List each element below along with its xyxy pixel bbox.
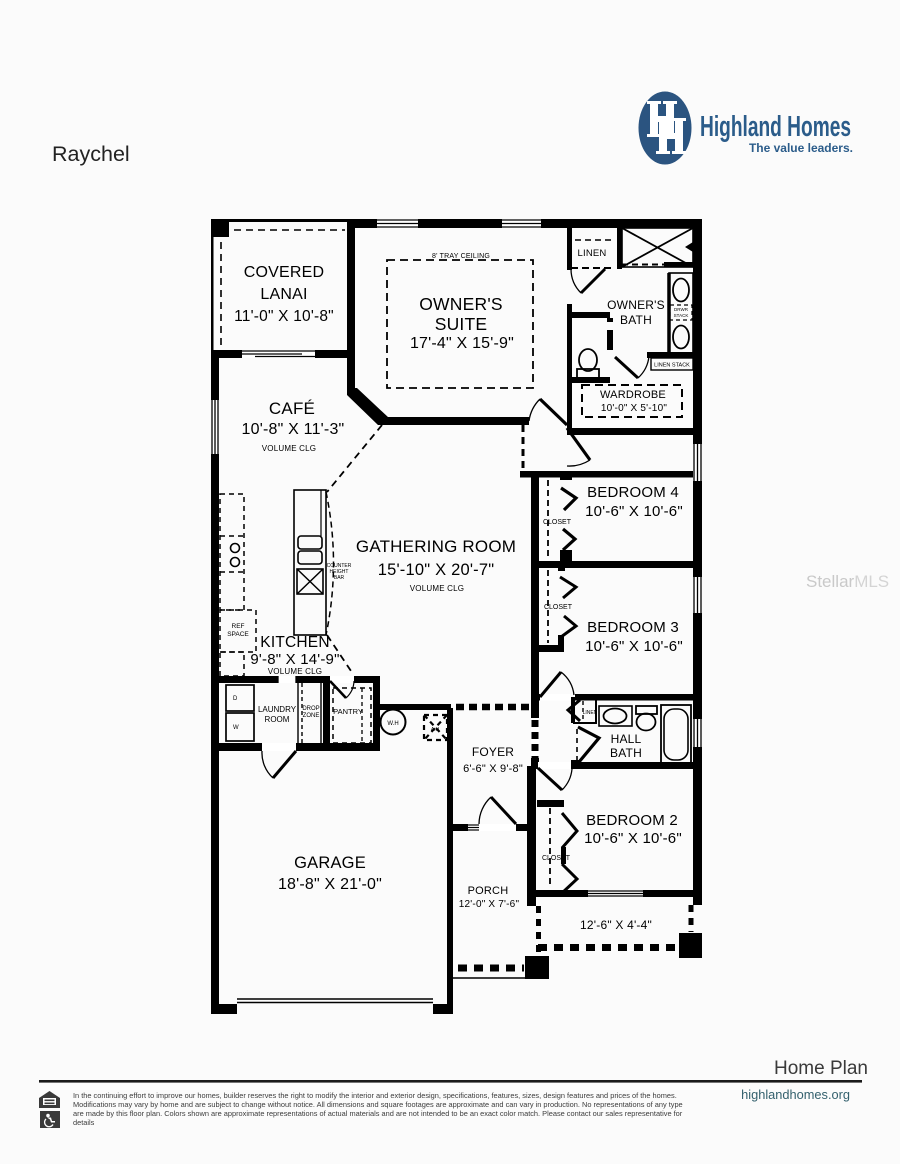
svg-text:17'-4" X 15'-9": 17'-4" X 15'-9" <box>410 335 514 352</box>
svg-text:COVERED: COVERED <box>244 264 325 281</box>
svg-text:HALL: HALL <box>611 732 642 746</box>
svg-text:DROP: DROP <box>302 706 319 712</box>
svg-text:18'-8" X 21'-0": 18'-8" X 21'-0" <box>278 876 382 893</box>
svg-text:6'-6" X 9'-8": 6'-6" X 9'-8" <box>463 763 523 775</box>
svg-text:KITCHEN: KITCHEN <box>260 634 329 651</box>
svg-text:OWNER'S: OWNER'S <box>419 294 503 314</box>
svg-text:ZONE: ZONE <box>303 713 320 719</box>
svg-text:LAUNDRY: LAUNDRY <box>258 705 297 714</box>
svg-text:The value leaders.: The value leaders. <box>749 141 853 155</box>
svg-text:D: D <box>233 696 238 702</box>
svg-text:ROOM: ROOM <box>265 715 290 724</box>
svg-text:LANAI: LANAI <box>260 286 307 303</box>
svg-text:BATH: BATH <box>610 746 642 760</box>
svg-text:SPACE: SPACE <box>227 631 249 638</box>
svg-text:10'-6" X 10'-6": 10'-6" X 10'-6" <box>585 503 683 520</box>
svg-text:OWNER'S: OWNER'S <box>607 298 665 312</box>
svg-text:REF: REF <box>232 623 245 630</box>
svg-text:Home Plan: Home Plan <box>774 1058 868 1079</box>
svg-text:LINEN: LINEN <box>583 710 598 716</box>
svg-text:VOLUME CLG: VOLUME CLG <box>410 584 464 593</box>
svg-text:In the continuing effort to im: In the continuing effort to improve our … <box>73 1091 677 1100</box>
svg-text:LINEN STACK: LINEN STACK <box>654 363 690 369</box>
svg-text:VOLUME CLG: VOLUME CLG <box>262 444 316 453</box>
svg-text:10'-8" X 11'-3": 10'-8" X 11'-3" <box>242 421 345 438</box>
svg-text:WARDROBE: WARDROBE <box>600 389 666 401</box>
svg-text:GARAGE: GARAGE <box>294 854 366 872</box>
svg-text:11'-0" X 10'-8": 11'-0" X 10'-8" <box>234 308 334 325</box>
svg-text:10'-6" X 10'-6": 10'-6" X 10'-6" <box>584 830 682 847</box>
svg-text:StellarMLS: StellarMLS <box>806 572 889 591</box>
svg-text:Highland Homes: Highland Homes <box>700 111 851 143</box>
svg-text:CAFÉ: CAFÉ <box>269 399 315 418</box>
svg-text:10'-0" X 5'-10": 10'-0" X 5'-10" <box>601 403 667 414</box>
svg-text:Modifications may vary by home: Modifications may vary by home and are s… <box>73 1100 683 1109</box>
svg-text:12'-6" X 4'-4": 12'-6" X 4'-4" <box>580 918 652 932</box>
svg-text:10'-6" X 10'-6": 10'-6" X 10'-6" <box>585 638 683 655</box>
svg-text:SUITE: SUITE <box>435 314 488 334</box>
svg-text:PANTRY: PANTRY <box>333 707 363 716</box>
svg-text:details: details <box>73 1118 95 1127</box>
svg-text:CLOSET: CLOSET <box>542 855 571 862</box>
svg-text:BAR: BAR <box>334 575 345 581</box>
svg-text:VOLUME CLG: VOLUME CLG <box>268 667 322 676</box>
svg-text:9'-8" X 14'-9": 9'-8" X 14'-9" <box>250 651 339 668</box>
svg-text:BATH: BATH <box>620 313 652 327</box>
svg-text:Raychel: Raychel <box>52 142 130 166</box>
svg-text:CLOSET: CLOSET <box>543 519 572 526</box>
svg-text:BEDROOM 3: BEDROOM 3 <box>587 619 679 636</box>
svg-text:A.H: A.H <box>431 727 440 733</box>
svg-text:PORCH: PORCH <box>468 885 509 897</box>
svg-text:LINEN: LINEN <box>578 248 607 259</box>
svg-text:BEDROOM 4: BEDROOM 4 <box>587 484 679 501</box>
svg-text:W.H: W.H <box>387 721 398 727</box>
svg-text:GATHERING ROOM: GATHERING ROOM <box>356 537 516 556</box>
svg-text:are made by this floor plan. C: are made by this floor plan. Colors show… <box>73 1109 683 1118</box>
svg-text:8' TRAY CEILING: 8' TRAY CEILING <box>432 253 490 260</box>
svg-text:STACK: STACK <box>674 313 689 318</box>
svg-text:FOYER: FOYER <box>472 745 514 759</box>
svg-text:BEDROOM 2: BEDROOM 2 <box>586 812 678 829</box>
svg-text:12'-0" X 7'-6": 12'-0" X 7'-6" <box>459 899 520 910</box>
svg-text:DRWR: DRWR <box>674 307 689 312</box>
svg-text:15'-10" X 20'-7": 15'-10" X 20'-7" <box>378 561 495 579</box>
svg-text:CLOSET: CLOSET <box>544 604 573 611</box>
svg-text:highlandhomes.org: highlandhomes.org <box>741 1087 850 1102</box>
svg-text:W: W <box>233 725 239 731</box>
